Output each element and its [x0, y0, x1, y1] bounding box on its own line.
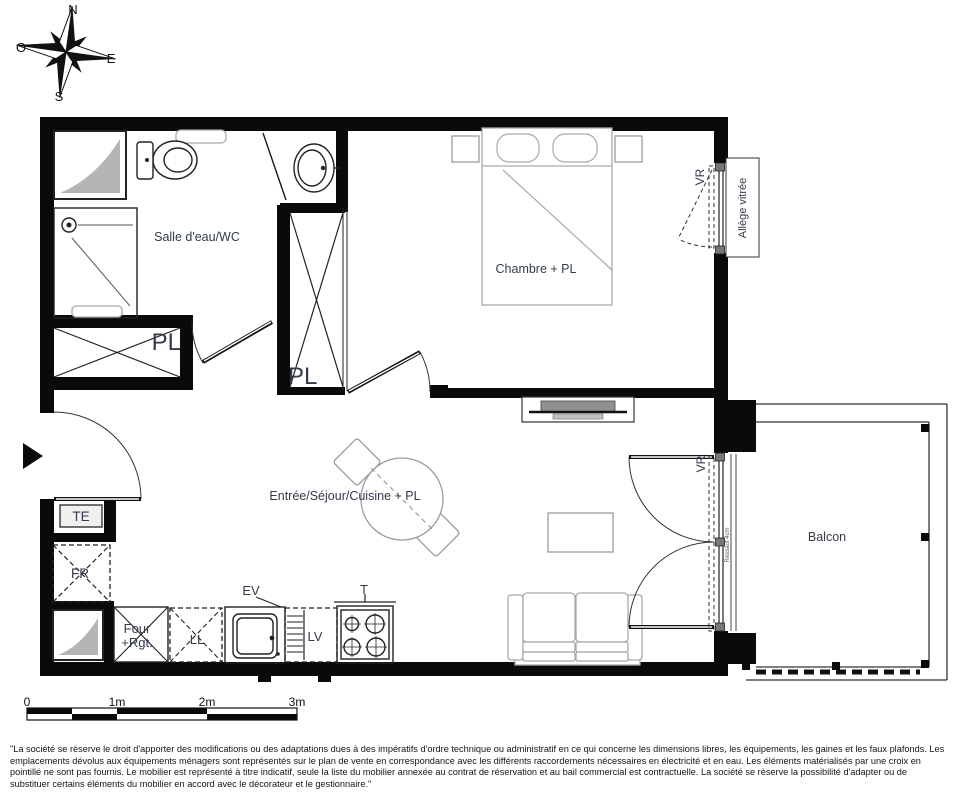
entry-arrow-icon [23, 443, 43, 469]
hob-unit: T [334, 582, 396, 663]
compass-south-label: S [55, 89, 64, 104]
dishwasher-unit: LV [285, 608, 337, 662]
floor-plan-drawing: N O E S [0, 0, 955, 800]
washbasin [294, 144, 341, 192]
roller-shutter-living-label: VR [694, 455, 708, 472]
fridge-label: FR [71, 566, 89, 581]
floor-plan-page: N O E S [0, 0, 955, 800]
compass-north-label: N [68, 2, 77, 17]
compass-east-label: E [107, 51, 116, 66]
compass-west-label: O [16, 40, 26, 55]
electrical-panel: TE [60, 505, 102, 527]
washer-label: LL [190, 632, 204, 647]
oven-label-1: Four [124, 621, 151, 636]
glazed-sill-label: Allège vitrée [737, 178, 749, 239]
washer-unit: LL [170, 608, 222, 662]
room-label-bathroom: Salle d'eau/WC [154, 230, 240, 244]
bedroom-door [348, 352, 430, 392]
oven-unit: Four +Rgt. [114, 607, 168, 662]
nightstand-left [452, 136, 479, 162]
scale-tick-1: 1m [109, 695, 126, 709]
shower [54, 208, 137, 318]
closet-hall-label: PL [152, 329, 181, 356]
toilet [137, 130, 226, 179]
fridge: FR [53, 545, 110, 602]
sink-unit: EV [225, 583, 285, 663]
room-label-living: Entrée/Séjour/Cuisine + PL [269, 489, 420, 503]
step-label: Ressaut 4cm [725, 527, 731, 562]
dishwasher-label: LV [308, 629, 323, 644]
closet-bedroom-label: PL [288, 363, 317, 390]
nightstand-right [615, 136, 642, 162]
scale-tick-3: 3m [289, 695, 306, 709]
sink-label: EV [242, 583, 260, 598]
duct-shaft-top [54, 131, 126, 199]
closet-bedroom: PL [288, 207, 347, 391]
coffee-table [548, 513, 613, 552]
oven-label-2: +Rgt. [121, 635, 152, 650]
roller-shutter-bedroom-label: VR [693, 168, 707, 185]
bathroom-door [192, 322, 272, 363]
cistern-niche [176, 130, 226, 143]
tv-unit [522, 397, 634, 422]
scale-bar: 0 1m 2m 3m [24, 695, 306, 720]
compass-rose-icon: N O E S [10, 0, 122, 105]
electrical-panel-label: TE [72, 509, 89, 524]
legal-disclaimer: "La société se réserve le droit d'apport… [10, 744, 948, 790]
room-label-balcony: Balcon [808, 530, 846, 544]
duct-shaft-bottom [53, 610, 103, 660]
scale-tick-0: 0 [24, 695, 31, 709]
room-label-bedroom: Chambre + PL [496, 262, 577, 276]
closet-hall: PL [54, 328, 181, 377]
sofa [508, 593, 642, 665]
balcony-door: VR Ressaut 4cm [629, 453, 736, 631]
walls [40, 117, 756, 682]
scale-tick-2: 2m [199, 695, 216, 709]
bed [482, 128, 612, 305]
bedroom-window: VR Allège vitrée [678, 158, 759, 257]
entry-door [23, 412, 141, 499]
hob-label: T [360, 582, 368, 597]
